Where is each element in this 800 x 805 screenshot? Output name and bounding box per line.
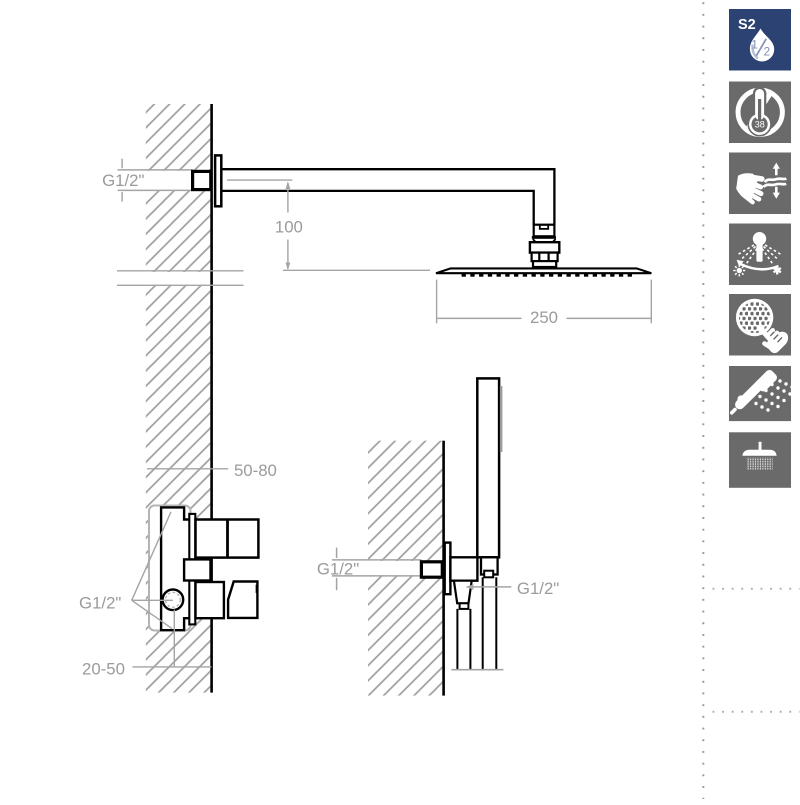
svg-text:50-80: 50-80 (234, 461, 277, 480)
svg-text:G1/2": G1/2" (79, 593, 121, 612)
svg-text:G1/2": G1/2" (102, 171, 144, 190)
svg-text:250: 250 (530, 308, 558, 327)
svg-text:G1/2": G1/2" (317, 559, 359, 578)
svg-text:38: 38 (755, 120, 765, 130)
svg-text:S2: S2 (738, 17, 756, 33)
svg-text:2: 2 (763, 45, 770, 59)
svg-text:1: 1 (751, 37, 758, 51)
svg-text:20-50: 20-50 (82, 659, 125, 678)
svg-text:100: 100 (275, 218, 303, 237)
svg-text:G1/2": G1/2" (517, 579, 559, 598)
